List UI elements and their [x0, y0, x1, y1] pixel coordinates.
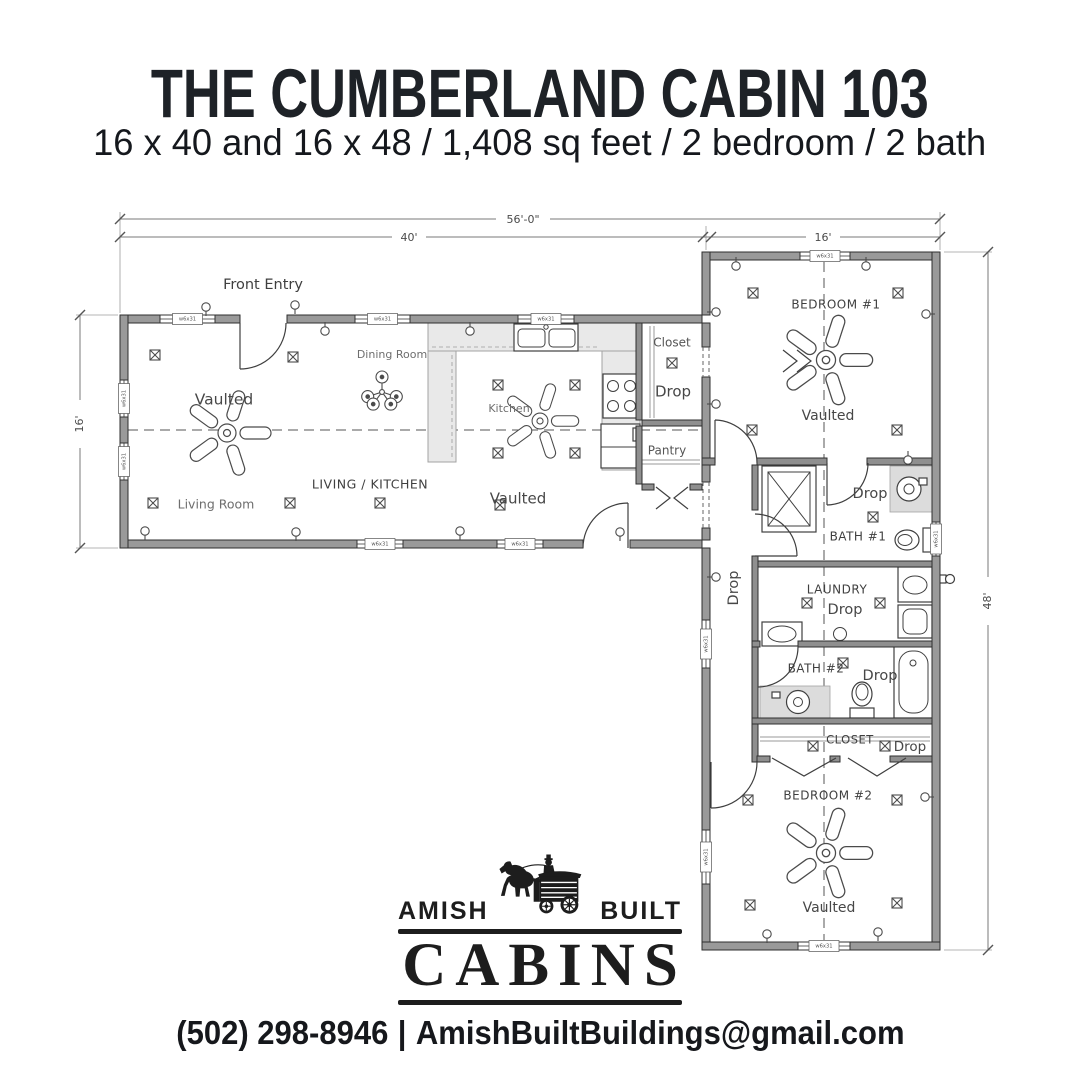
- window-tag: w6x31: [371, 542, 388, 548]
- junction-box-icon: [808, 741, 818, 751]
- page-subtitle: 16 x 40 and 16 x 48 / 1,408 sq feet / 2 …: [93, 122, 986, 164]
- room-label-drop-bath-2: Drop: [863, 668, 898, 684]
- room-label-closet-2: CLOSET: [826, 733, 874, 747]
- junction-box-icon: [148, 498, 158, 508]
- front-door-swing: [240, 323, 286, 369]
- back-door-swing: [583, 503, 628, 548]
- company-logo: AMISH: [398, 850, 682, 1005]
- junction-box-icon: [875, 598, 885, 608]
- junction-box-icon: [868, 512, 878, 522]
- window: w6x31: [160, 314, 215, 325]
- junction-box-icon: [893, 288, 903, 298]
- junction-box-icon: [892, 425, 902, 435]
- wall-light-icon: [904, 451, 912, 464]
- wall-light-icon: [292, 528, 300, 541]
- room-label-bath-2: BATH #2: [788, 662, 845, 676]
- window-tag: w6x31: [122, 390, 128, 407]
- junction-box-icon: [570, 448, 580, 458]
- wall-light-icon: [202, 303, 210, 316]
- dimension-overall-width: 56'-0": [506, 213, 539, 226]
- ceiling-fan-icon: [785, 807, 873, 900]
- junction-box-icon: [802, 598, 812, 608]
- room-label-drop-laundry: Drop: [828, 602, 863, 618]
- window: w6x31: [798, 941, 850, 952]
- junction-box-icon: [667, 358, 677, 368]
- window-tag: w6x31: [704, 848, 710, 865]
- closet-bifold-door: [772, 758, 836, 776]
- ceiling-fan-icon: [785, 314, 873, 407]
- junction-box-icon: [493, 380, 503, 390]
- kitchen-area: [428, 323, 640, 470]
- room-label-vaulted-bedroom-1: Vaulted: [802, 408, 855, 424]
- room-label-vaulted-living: Vaulted: [195, 391, 253, 409]
- room-label-dining-room: Dining Room: [357, 348, 427, 361]
- window-tag: w6x31: [374, 317, 391, 323]
- junction-box-icon: [285, 498, 295, 508]
- window: w6x31: [119, 443, 130, 480]
- window: w6x31: [355, 314, 410, 325]
- room-label-drop-hall: Drop: [726, 571, 742, 606]
- room-label-front-entry: Front Entry: [223, 277, 303, 293]
- room-label-living-kitchen: LIVING / KITCHEN: [312, 477, 428, 492]
- window-tag: w6x31: [179, 317, 196, 323]
- window: w6x31: [497, 539, 543, 550]
- room-label-vaulted-bedroom-2: Vaulted: [803, 900, 856, 916]
- dining-light-icon: [362, 371, 403, 410]
- ceiling-fixtures: [188, 314, 873, 900]
- window: w6x31: [518, 314, 574, 325]
- pantry-arrow-icon: [656, 487, 688, 509]
- ceiling-fan-icon: [506, 383, 579, 460]
- junction-box-icon: [493, 448, 503, 458]
- stove: [603, 374, 639, 418]
- wall-light-icon: [616, 528, 624, 541]
- email-address: AmishBuiltBuildings@gmail.com: [415, 1014, 904, 1051]
- wall-light-icon: [456, 527, 464, 540]
- window-tag: w6x31: [816, 254, 833, 260]
- room-label-bedroom-2: BEDROOM #2: [783, 789, 872, 803]
- room-label-drop-closet-1: Drop: [655, 383, 691, 401]
- window: w6x31: [931, 522, 942, 556]
- bath2-toilet: [852, 682, 872, 706]
- junction-box-icon: [745, 900, 755, 910]
- junction-box-icon: [748, 288, 758, 298]
- footer-separator: |: [388, 1014, 415, 1051]
- junction-box-icon: [375, 498, 385, 508]
- junction-box-icon: [288, 352, 298, 362]
- junction-box-icon: [570, 380, 580, 390]
- bathtub: [894, 646, 933, 718]
- logo-amish: AMISH: [398, 899, 489, 926]
- window-tag: w6x31: [815, 944, 832, 950]
- window: w6x31: [357, 539, 403, 550]
- room-label-drop-closet-2: Drop: [894, 739, 926, 755]
- window: w6x31: [800, 251, 850, 262]
- flyer-canvas: 56'-0"40'16'16'48': [0, 0, 1080, 1080]
- window-tag: w6x31: [537, 317, 554, 323]
- logo-rule-bottom: [398, 1000, 682, 1005]
- centerlines: [128, 262, 824, 940]
- window: w6x31: [701, 830, 712, 884]
- phone-number: (502) 298-8946: [176, 1014, 388, 1051]
- junction-box-icon: [150, 350, 160, 360]
- room-label-living-room: Living Room: [178, 497, 255, 512]
- window-tag: w6x31: [934, 530, 940, 547]
- logo-built: BUILT: [600, 899, 682, 926]
- dimension-right-wing-depth: 48': [981, 592, 994, 609]
- dimension-left-wing-width: 40': [400, 231, 417, 244]
- junction-box-icon: [747, 425, 757, 435]
- wall-light-icon: [141, 527, 149, 540]
- wall-light-icon: [291, 301, 299, 314]
- dimension-left-wing-depth: 16': [73, 415, 86, 432]
- junction-box-icon: [892, 795, 902, 805]
- window-tag: w6x31: [704, 635, 710, 652]
- room-label-drop-bath-1: Drop: [853, 486, 888, 502]
- logo-cabins: CABINS: [398, 935, 691, 997]
- junction-box-icon: [880, 741, 890, 751]
- wall-light-icon: [763, 930, 771, 943]
- room-label-vaulted-kitchen: Vaulted: [490, 490, 547, 508]
- horse-and-wagon-icon: [489, 850, 601, 926]
- dimension-right-wing-width: 16': [814, 231, 831, 244]
- window: w6x31: [701, 620, 712, 668]
- bath1-toilet: [895, 530, 919, 550]
- room-label-bath-1: BATH #1: [830, 530, 887, 544]
- room-label-bedroom-1: BEDROOM #1: [791, 298, 880, 312]
- junction-box-icon: [892, 898, 902, 908]
- room-label-kitchen: Kitchen: [488, 402, 529, 415]
- bath1-sink: [897, 477, 921, 501]
- wall-light-icon: [874, 928, 882, 941]
- floor-drain-icon: [834, 628, 847, 641]
- junction-box-icon: [743, 795, 753, 805]
- room-label-closet-1: Closet: [653, 336, 691, 350]
- window-tag: w6x31: [122, 453, 128, 470]
- room-label-pantry: Pantry: [648, 444, 686, 458]
- window: w6x31: [119, 380, 130, 417]
- window-tag: w6x31: [511, 542, 528, 548]
- bath2-toilet-tank: [850, 708, 874, 718]
- room-label-laundry: LAUNDRY: [807, 583, 868, 597]
- bath2-sink: [787, 691, 810, 714]
- footer: (502) 298-8946|AmishBuiltBuildings@gmail…: [0, 1014, 1080, 1052]
- wall-light-icon: [321, 322, 329, 335]
